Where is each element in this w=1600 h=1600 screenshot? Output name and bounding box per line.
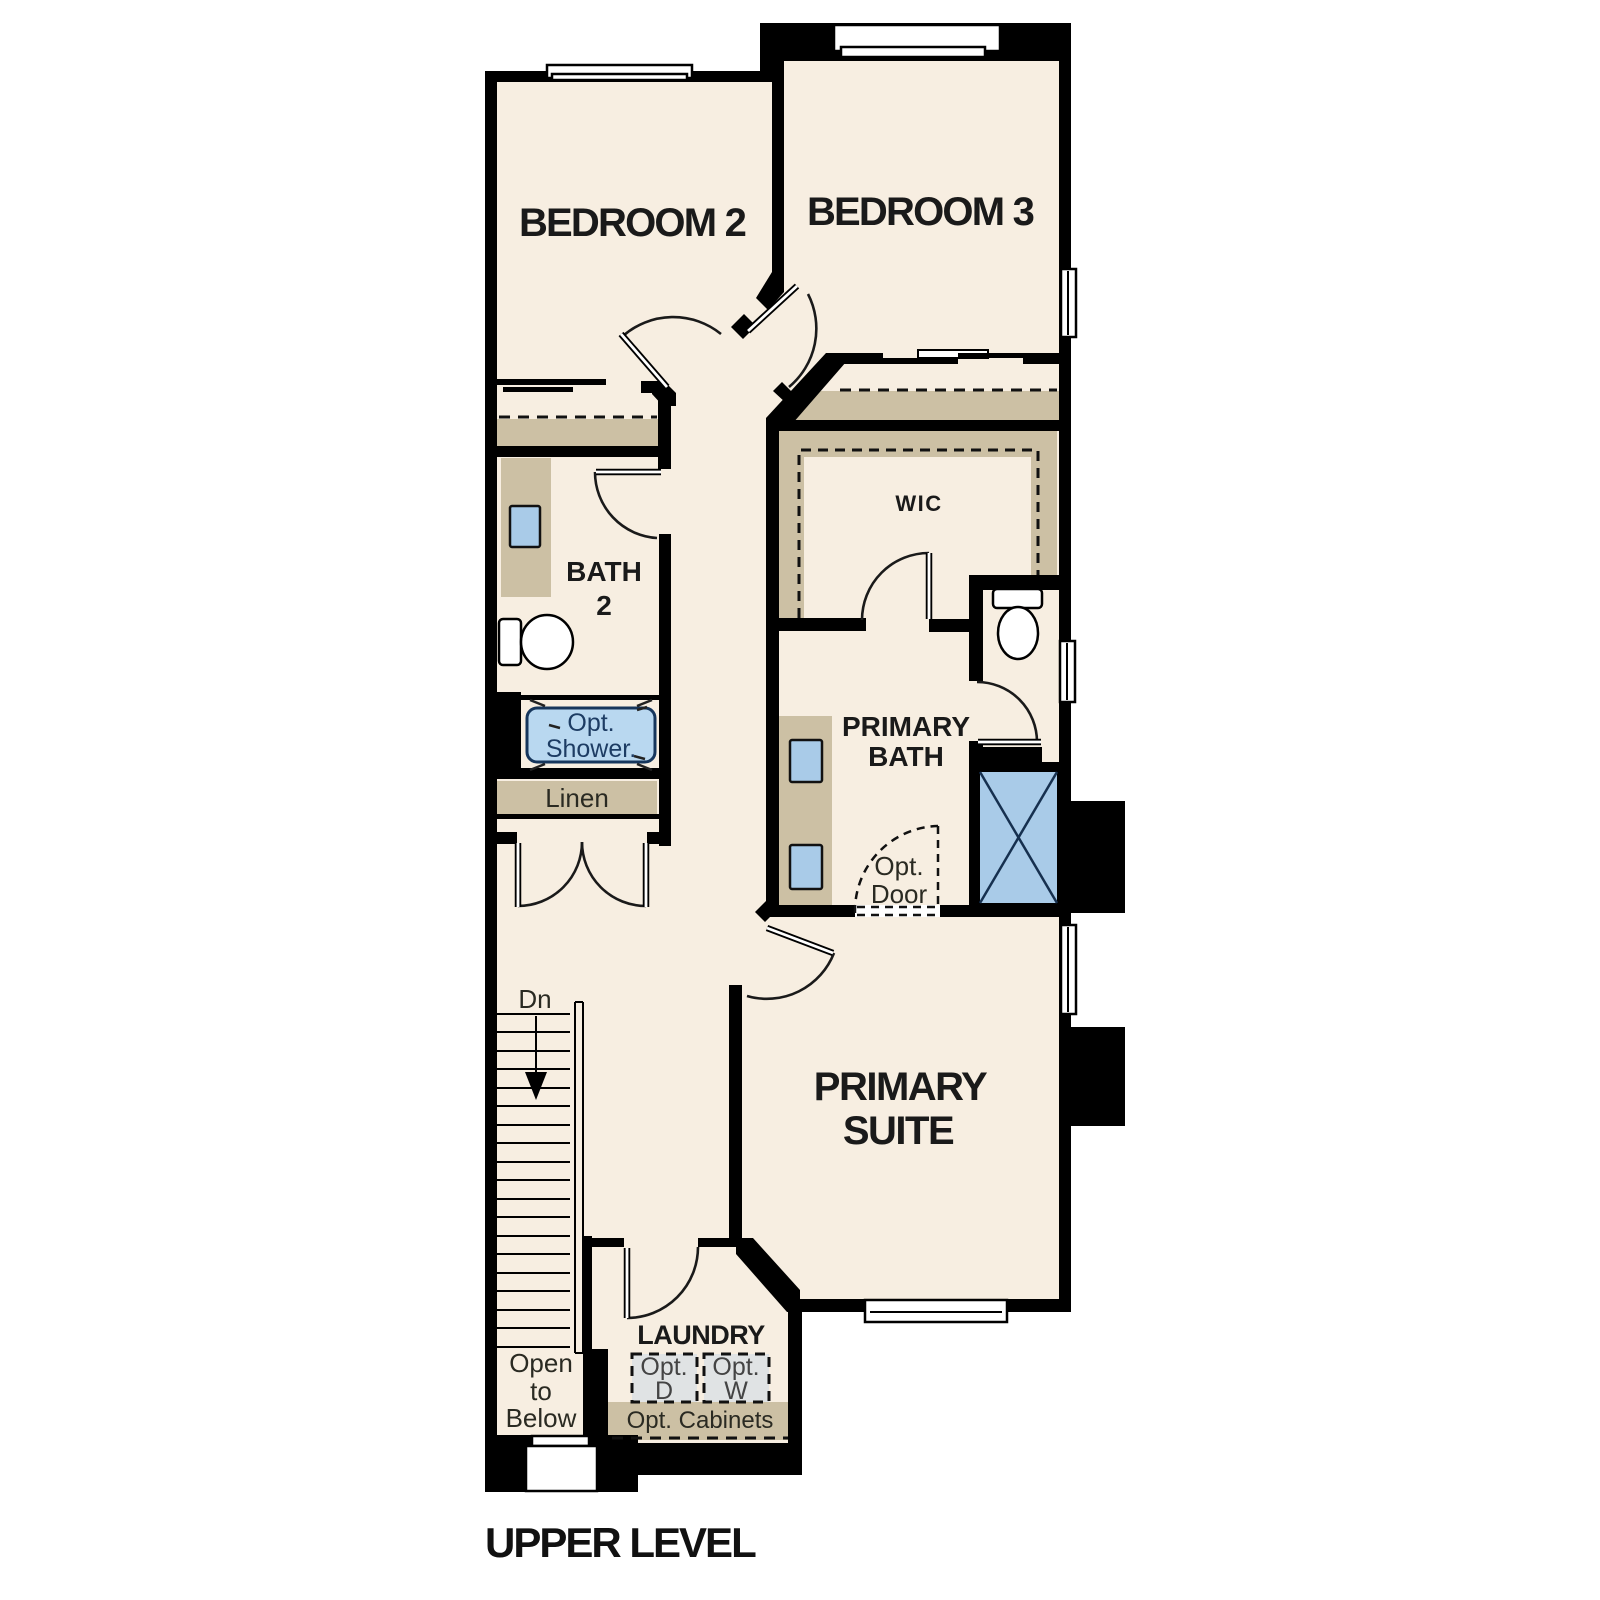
svg-text:Below: Below xyxy=(506,1403,577,1433)
svg-text:Opt. Cabinets: Opt. Cabinets xyxy=(627,1407,774,1434)
svg-text:Linen: Linen xyxy=(545,783,609,813)
svg-text:PRIMARY: PRIMARY xyxy=(842,711,970,742)
svg-text:WIC: WIC xyxy=(895,491,942,516)
svg-text:Opt.: Opt. xyxy=(874,851,923,881)
svg-text:BEDROOM 3: BEDROOM 3 xyxy=(807,190,1034,234)
svg-text:LAUNDRY: LAUNDRY xyxy=(637,1320,765,1350)
svg-text:PRIMARY: PRIMARY xyxy=(814,1065,988,1109)
svg-text:D: D xyxy=(655,1377,673,1405)
svg-text:UPPER LEVEL: UPPER LEVEL xyxy=(485,1519,756,1566)
svg-text:Door: Door xyxy=(871,879,928,909)
svg-text:BATH: BATH xyxy=(868,741,944,772)
svg-text:to: to xyxy=(530,1376,552,1406)
svg-text:Shower.: Shower. xyxy=(546,735,636,763)
svg-text:BATH: BATH xyxy=(566,556,642,587)
svg-text:BEDROOM 2: BEDROOM 2 xyxy=(519,201,746,245)
svg-text:Open: Open xyxy=(509,1348,573,1378)
svg-text:Opt.: Opt. xyxy=(567,709,614,737)
svg-text:W: W xyxy=(724,1377,748,1405)
svg-text:SUITE: SUITE xyxy=(843,1109,954,1153)
svg-text:2: 2 xyxy=(596,590,612,621)
svg-text:Dn: Dn xyxy=(518,984,551,1014)
